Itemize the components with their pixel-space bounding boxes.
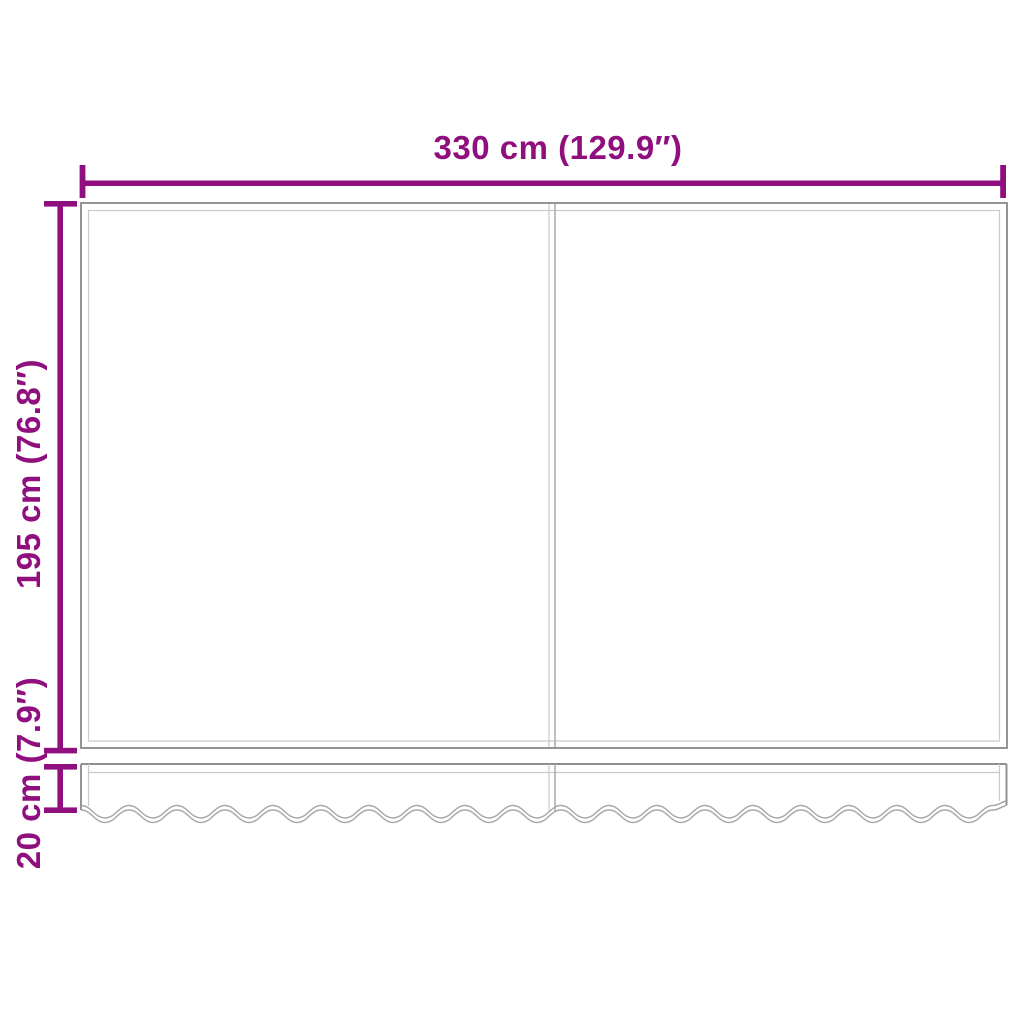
valance-wavy-bottom-inner [81, 801, 1006, 818]
fabric-inner-seam-edge [89, 211, 1000, 742]
valance-height-dimension-label: 20 cm (7.9″) [10, 677, 48, 869]
dimension-markers [44, 165, 1006, 813]
height-dimension-cap-bottom [44, 748, 77, 754]
height-dimension-label: 195 cm (76.8″) [10, 359, 48, 589]
valance-outline [81, 764, 1007, 823]
width-dimension-cap-left [80, 165, 86, 198]
height-dimension-line [57, 204, 63, 751]
dimension-diagram-canvas: 330 cm (129.9″) 195 cm (76.8″) 20 cm (7.… [0, 0, 1024, 1024]
valance-dimension-line [57, 765, 63, 811]
awning-fabric-outline [81, 203, 1007, 748]
width-dimension-cap-right [1000, 165, 1006, 198]
valance-wavy-bottom-outer [81, 806, 1006, 823]
valance-dimension-cap-bottom [44, 807, 77, 813]
width-dimension-line [82, 181, 1003, 187]
fabric-outer-edge [81, 203, 1007, 748]
valance-dimension-cap-top [44, 764, 77, 770]
width-dimension-label: 330 cm (129.9″) [434, 129, 683, 167]
height-dimension-cap-top [44, 201, 77, 207]
